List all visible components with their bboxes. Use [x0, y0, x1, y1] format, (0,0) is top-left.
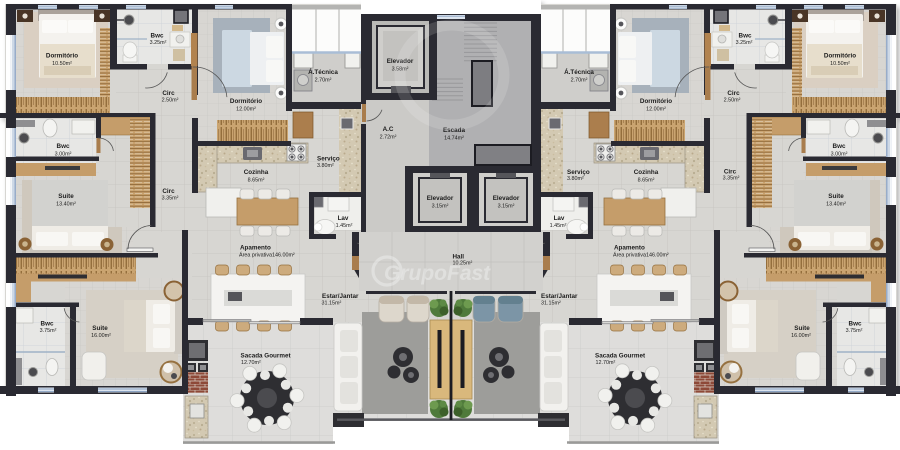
svg-text:Dormitório: Dormitório	[46, 53, 78, 60]
svg-text:12.00m²: 12.00m²	[236, 107, 256, 113]
svg-text:Cozinha: Cozinha	[244, 169, 269, 176]
svg-text:Serviço: Serviço	[567, 169, 590, 176]
svg-text:Sacada Gourmet: Sacada Gourmet	[595, 353, 646, 360]
svg-text:2.70m²: 2.70m²	[315, 78, 332, 84]
svg-text:12.00m²: 12.00m²	[646, 107, 666, 113]
svg-text:3.25m²: 3.25m²	[736, 40, 753, 46]
svg-text:16.00m²: 16.00m²	[791, 333, 811, 339]
svg-text:A.C: A.C	[383, 126, 394, 133]
svg-text:Dormitório: Dormitório	[824, 53, 856, 60]
svg-text:1.45m²: 1.45m²	[550, 223, 567, 229]
svg-text:3.00m²: 3.00m²	[55, 152, 72, 158]
svg-text:12.70m²: 12.70m²	[241, 360, 261, 366]
svg-text:Circ: Circ	[727, 90, 740, 97]
svg-text:Hall: Hall	[453, 254, 465, 261]
svg-text:13.40m²: 13.40m²	[56, 202, 76, 208]
svg-text:Área privativa146.00m²: Área privativa146.00m²	[613, 252, 669, 259]
svg-text:13.40m²: 13.40m²	[826, 202, 846, 208]
svg-text:Elevador: Elevador	[427, 195, 454, 202]
svg-text:Circ: Circ	[162, 90, 175, 97]
svg-text:Bwc: Bwc	[739, 33, 752, 40]
svg-text:Bwc: Bwc	[57, 143, 70, 150]
svg-text:16.00m²: 16.00m²	[91, 333, 111, 339]
svg-text:Estar/Jantar: Estar/Jantar	[541, 293, 578, 300]
svg-text:3.35m²: 3.35m²	[162, 196, 179, 202]
svg-text:Bwc: Bwc	[41, 321, 54, 328]
svg-text:3.15m²: 3.15m²	[432, 204, 449, 210]
svg-text:Á.Técnica: Á.Técnica	[308, 67, 338, 76]
svg-text:GrupoFast: GrupoFast	[384, 262, 491, 285]
svg-text:31.15m²: 31.15m²	[322, 301, 342, 307]
svg-text:3.75m²: 3.75m²	[40, 328, 57, 334]
svg-text:Circ: Circ	[724, 169, 737, 176]
svg-text:Suite: Suite	[828, 193, 844, 200]
svg-text:Estar/Jantar: Estar/Jantar	[322, 293, 359, 300]
svg-text:3.80m²: 3.80m²	[317, 163, 334, 169]
svg-text:12.70m²: 12.70m²	[596, 360, 616, 366]
svg-text:Circ: Circ	[162, 188, 175, 195]
svg-text:Lav: Lav	[338, 215, 349, 222]
svg-text:Suite: Suite	[92, 325, 108, 332]
svg-text:Apamento: Apamento	[240, 245, 271, 252]
svg-text:Á.Técnica: Á.Técnica	[564, 67, 594, 76]
svg-text:3.80m²: 3.80m²	[567, 176, 584, 182]
svg-text:31.15m²: 31.15m²	[541, 301, 561, 307]
svg-text:3.35m²: 3.35m²	[723, 176, 740, 182]
svg-text:Sacada Gourmet: Sacada Gourmet	[241, 353, 292, 360]
svg-text:Suite: Suite	[794, 325, 810, 332]
svg-text:Dormitório: Dormitório	[230, 98, 262, 105]
svg-text:2.70m²: 2.70m²	[571, 78, 588, 84]
svg-text:1.45m²: 1.45m²	[336, 223, 353, 229]
svg-text:10.50m²: 10.50m²	[52, 61, 72, 67]
svg-text:2.72m²: 2.72m²	[380, 135, 397, 141]
svg-text:2.50m²: 2.50m²	[162, 98, 179, 104]
svg-text:3.15m²: 3.15m²	[498, 204, 515, 210]
svg-text:3.25m²: 3.25m²	[150, 40, 167, 46]
svg-text:8.65m²: 8.65m²	[638, 178, 655, 184]
svg-text:10.50m²: 10.50m²	[830, 61, 850, 67]
svg-text:Bwc: Bwc	[849, 321, 862, 328]
svg-text:Cozinha: Cozinha	[634, 169, 659, 176]
svg-text:Lav: Lav	[554, 215, 565, 222]
svg-text:3.75m²: 3.75m²	[846, 328, 863, 334]
svg-text:2.50m²: 2.50m²	[724, 98, 741, 104]
svg-text:Bwc: Bwc	[833, 143, 846, 150]
svg-text:Apamento: Apamento	[614, 245, 645, 252]
svg-text:Dormitório: Dormitório	[640, 98, 672, 105]
svg-text:Bwc: Bwc	[151, 33, 164, 40]
svg-text:14.74m²: 14.74m²	[444, 136, 464, 142]
svg-text:Serviço: Serviço	[317, 156, 340, 163]
svg-text:Área privativa146.00m²: Área privativa146.00m²	[239, 252, 295, 259]
svg-text:Suite: Suite	[58, 193, 74, 200]
svg-text:3.00m²: 3.00m²	[831, 152, 848, 158]
svg-text:8.65m²: 8.65m²	[248, 178, 265, 184]
svg-text:Elevador: Elevador	[493, 195, 520, 202]
